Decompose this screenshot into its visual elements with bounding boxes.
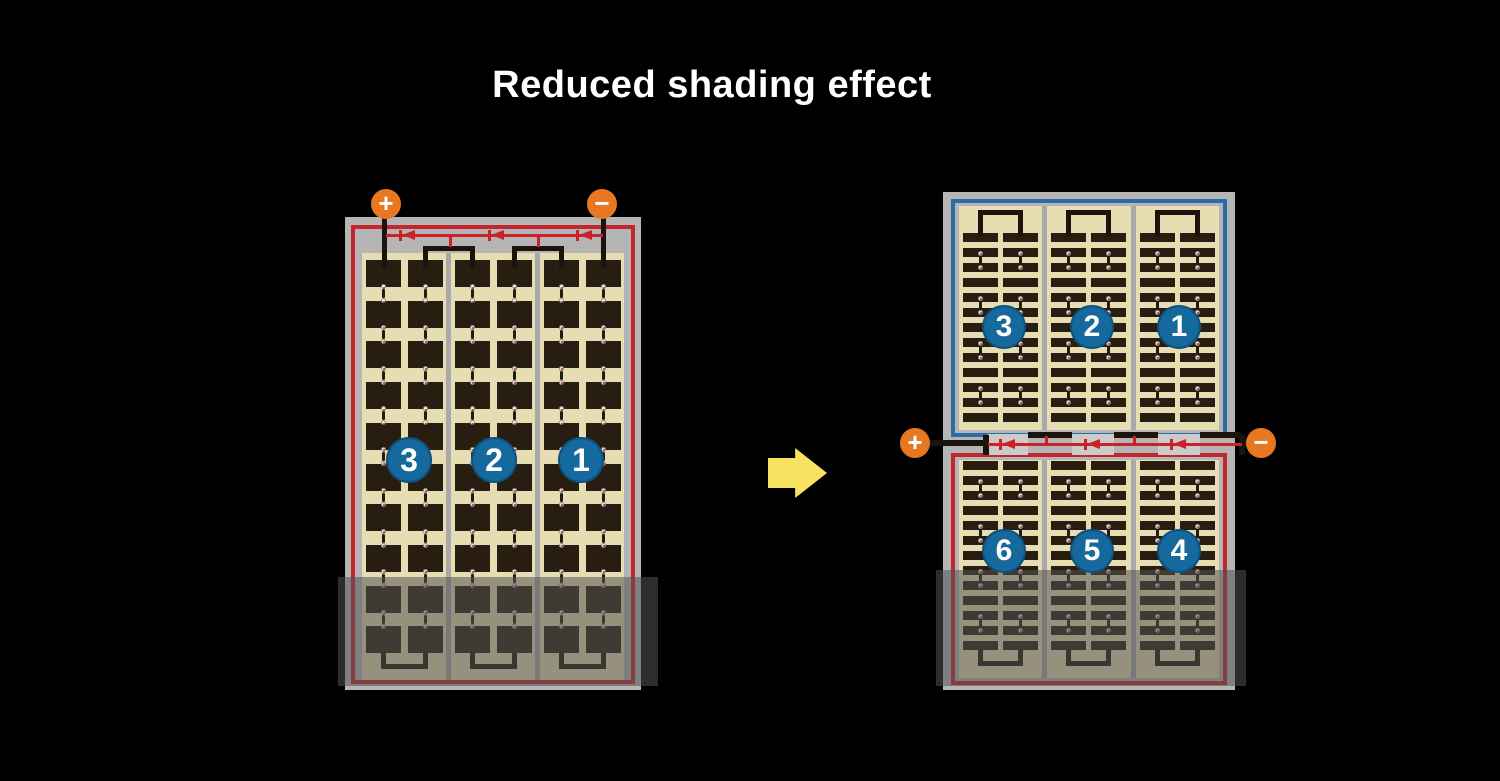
half-cell-bar	[963, 506, 998, 515]
solar-cell	[366, 341, 401, 368]
half-cell-bar	[1140, 368, 1175, 377]
busbar-stub	[1106, 210, 1111, 236]
half-cell-bar	[1180, 506, 1215, 515]
plus-terminal-icon: +	[900, 428, 930, 458]
solder-connector	[469, 326, 476, 343]
solder-connector	[977, 252, 984, 269]
solder-connector	[1194, 252, 1201, 269]
solder-connector	[380, 367, 387, 384]
solar-cell	[366, 504, 401, 531]
diode-line-tick	[1133, 436, 1136, 445]
string-badge-left-2: 2	[471, 437, 517, 483]
busbar-stub	[470, 246, 475, 268]
half-cell-bar	[1051, 413, 1086, 422]
solder-connector	[600, 367, 607, 384]
solder-connector	[511, 489, 518, 506]
diode-line-tick	[537, 235, 540, 247]
half-cell-bar	[1180, 461, 1215, 470]
solder-connector	[511, 530, 518, 547]
string-badge-left-1: 1	[558, 437, 604, 483]
diagram-title: Reduced shading effect	[312, 64, 1112, 107]
solder-connector	[469, 407, 476, 424]
diode-line-tick	[449, 235, 452, 247]
bypass-diode-icon	[1170, 439, 1188, 450]
solar-cell	[586, 504, 621, 531]
solder-connector	[422, 367, 429, 384]
solder-connector	[558, 326, 565, 343]
solder-connector	[469, 489, 476, 506]
shaded-region-right	[936, 570, 1246, 686]
solder-connector	[600, 489, 607, 506]
diagram-canvas: Reduced shading effect + − 3 2 1 + − 3 2…	[0, 0, 1500, 781]
solder-connector	[1154, 297, 1161, 314]
solder-connector	[380, 530, 387, 547]
solar-cell	[366, 545, 401, 572]
solar-cell	[408, 382, 443, 409]
half-cell-bar	[963, 413, 998, 422]
string-badge-bottom-5: 5	[1070, 529, 1114, 573]
busbar-bridge	[1066, 210, 1111, 215]
solar-cell	[544, 301, 579, 328]
solar-cell	[586, 382, 621, 409]
solder-connector	[380, 489, 387, 506]
solder-connector	[600, 285, 607, 302]
solder-connector	[1065, 297, 1072, 314]
bypass-diode-icon	[1084, 439, 1102, 450]
solar-cell	[408, 341, 443, 368]
diode-line-tick	[1045, 436, 1048, 445]
solar-cell	[544, 545, 579, 572]
half-cell-bar	[1091, 413, 1126, 422]
busbar-stub	[1195, 210, 1200, 236]
half-cell-bar	[1140, 413, 1175, 422]
solar-cell	[586, 545, 621, 572]
half-cell-bar	[1051, 368, 1086, 377]
half-cell-bar	[1051, 506, 1086, 515]
string-badge-top-1: 1	[1157, 305, 1201, 349]
half-cell-bar	[1180, 278, 1215, 287]
solar-cell	[497, 301, 532, 328]
busbar-stub	[1018, 210, 1023, 236]
solder-connector	[977, 480, 984, 497]
solar-cell	[544, 341, 579, 368]
solar-cell	[544, 504, 579, 531]
string-badge-bottom-4: 4	[1157, 529, 1201, 573]
solder-connector	[600, 530, 607, 547]
solder-connector	[380, 326, 387, 343]
half-cell-bar	[1051, 461, 1086, 470]
busbar-link	[1114, 432, 1158, 438]
solder-connector	[977, 342, 984, 359]
solder-connector	[1154, 252, 1161, 269]
solar-cell	[497, 382, 532, 409]
solder-connector	[1105, 480, 1112, 497]
solder-connector	[558, 530, 565, 547]
solder-connector	[558, 285, 565, 302]
string-separator	[1131, 206, 1136, 430]
solar-cell	[497, 504, 532, 531]
string-badge-left-3: 3	[386, 437, 432, 483]
solder-connector	[422, 530, 429, 547]
solder-connector	[600, 326, 607, 343]
half-cell-bar	[1003, 506, 1038, 515]
solder-connector	[1194, 480, 1201, 497]
half-cell-bar	[1003, 368, 1038, 377]
bypass-diode-icon	[399, 230, 417, 241]
solder-connector	[1065, 480, 1072, 497]
half-cell-bar	[963, 461, 998, 470]
solder-connector	[1154, 387, 1161, 404]
solder-connector	[558, 407, 565, 424]
solder-connector	[380, 407, 387, 424]
solar-cell	[408, 504, 443, 531]
solder-connector	[511, 285, 518, 302]
solder-connector	[1105, 387, 1112, 404]
minus-terminal-icon: −	[1246, 428, 1276, 458]
solar-cell	[497, 545, 532, 572]
half-cell-bar	[1051, 278, 1086, 287]
solder-connector	[1105, 252, 1112, 269]
solder-connector	[511, 407, 518, 424]
solar-cell	[408, 301, 443, 328]
solder-connector	[1065, 342, 1072, 359]
solder-connector	[558, 367, 565, 384]
solar-cell	[586, 341, 621, 368]
solar-cell	[455, 301, 490, 328]
half-cell-bar	[1091, 278, 1126, 287]
shaded-region-left	[338, 577, 658, 686]
solder-connector	[1065, 387, 1072, 404]
bypass-diode-icon	[999, 439, 1017, 450]
solder-connector	[511, 326, 518, 343]
solder-connector	[1194, 297, 1201, 314]
arrow-right-icon	[768, 448, 827, 498]
solder-connector	[977, 297, 984, 314]
solar-cell	[366, 382, 401, 409]
half-cell-bar	[1091, 368, 1126, 377]
solar-cell	[408, 545, 443, 572]
solder-connector	[1194, 342, 1201, 359]
minus-terminal-icon: −	[587, 189, 617, 219]
solder-connector	[1194, 387, 1201, 404]
half-cell-bar	[963, 368, 998, 377]
busbar-stub	[423, 246, 428, 268]
terminal-busbar	[601, 212, 606, 268]
solder-connector	[558, 489, 565, 506]
half-cell-bar	[1003, 278, 1038, 287]
solder-connector	[600, 407, 607, 424]
half-cell-bar	[1140, 461, 1175, 470]
solar-cell	[544, 382, 579, 409]
busbar-stub	[1155, 210, 1160, 236]
solar-cell	[366, 301, 401, 328]
solder-connector	[380, 285, 387, 302]
half-cell-bar	[1180, 368, 1215, 377]
bypass-diode-icon	[576, 230, 594, 241]
solar-cell	[586, 301, 621, 328]
half-cell-bar	[1003, 413, 1038, 422]
busbar-stub	[978, 210, 983, 236]
half-cell-bar	[1180, 413, 1215, 422]
half-cell-bar	[1091, 461, 1126, 470]
busbar-link	[1200, 432, 1241, 438]
busbar-stub	[512, 246, 517, 268]
solder-connector	[469, 285, 476, 302]
half-cell-bar	[1140, 506, 1175, 515]
plus-terminal-icon: +	[371, 189, 401, 219]
busbar-link	[1028, 432, 1072, 438]
busbar-bridge	[978, 210, 1023, 215]
solder-connector	[511, 367, 518, 384]
bypass-diode-line	[988, 443, 1242, 446]
half-cell-bar	[1091, 506, 1126, 515]
half-cell-bar	[963, 278, 998, 287]
solder-connector	[1017, 252, 1024, 269]
string-separator	[1042, 206, 1047, 430]
string-badge-top-3: 3	[982, 305, 1026, 349]
solar-cell	[455, 382, 490, 409]
solder-connector	[422, 285, 429, 302]
solar-cell	[455, 504, 490, 531]
solder-connector	[1154, 342, 1161, 359]
solder-connector	[1017, 480, 1024, 497]
solder-connector	[422, 326, 429, 343]
solder-connector	[977, 387, 984, 404]
busbar-bridge	[1155, 210, 1200, 215]
terminal-busbar	[382, 212, 387, 268]
solder-connector	[1065, 525, 1072, 542]
busbar-stub	[1066, 210, 1071, 236]
string-badge-top-2: 2	[1070, 305, 1114, 349]
solar-cell	[455, 545, 490, 572]
solder-connector	[1017, 387, 1024, 404]
terminal-wire	[929, 440, 989, 446]
solder-connector	[469, 367, 476, 384]
solar-cell	[497, 341, 532, 368]
solder-connector	[1154, 480, 1161, 497]
solder-connector	[422, 407, 429, 424]
solder-connector	[1065, 252, 1072, 269]
solder-connector	[469, 530, 476, 547]
string-badge-bottom-6: 6	[982, 529, 1026, 573]
solder-connector	[977, 525, 984, 542]
busbar-stub	[559, 246, 564, 268]
half-cell-bar	[1003, 461, 1038, 470]
bypass-diode-icon	[488, 230, 506, 241]
solder-connector	[422, 489, 429, 506]
solder-connector	[1105, 342, 1112, 359]
solder-connector	[1017, 342, 1024, 359]
half-cell-bar	[1140, 278, 1175, 287]
solar-cell	[455, 341, 490, 368]
